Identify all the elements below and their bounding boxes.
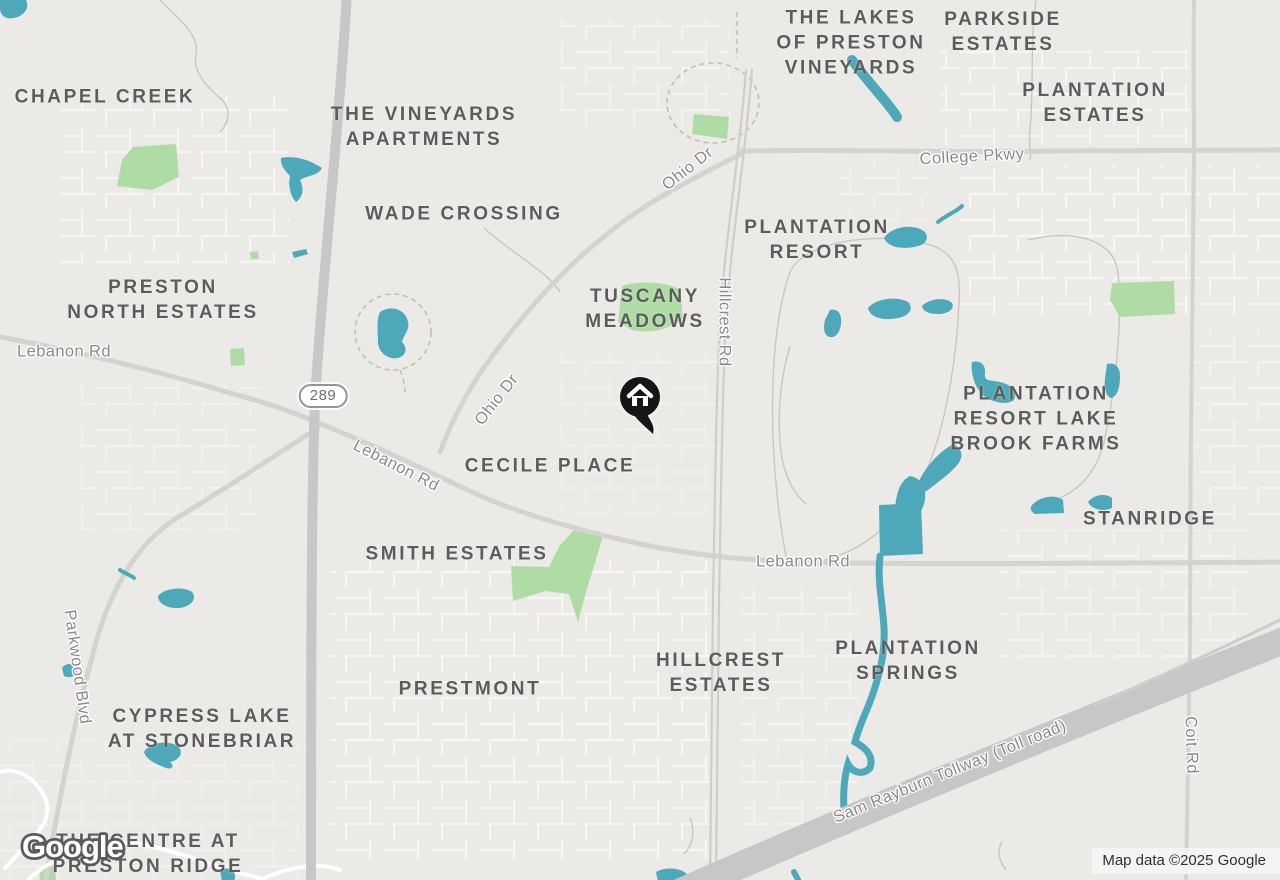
home-marker[interactable] — [616, 373, 664, 441]
highway-shield-label: 289 — [310, 387, 337, 404]
google-logo[interactable]: Google — [14, 823, 174, 874]
map-attribution: Map data ©2025 Google — [1092, 848, 1280, 874]
map-canvas[interactable]: CHAPEL CREEKTHE VINEYARDS APARTMENTSWADE… — [0, 0, 1280, 880]
google-logo-text: Google — [22, 829, 124, 864]
highway-shield-289: 289 — [299, 384, 348, 408]
home-pin-icon — [616, 373, 664, 441]
google-logo-graphic: Google — [14, 823, 174, 869]
